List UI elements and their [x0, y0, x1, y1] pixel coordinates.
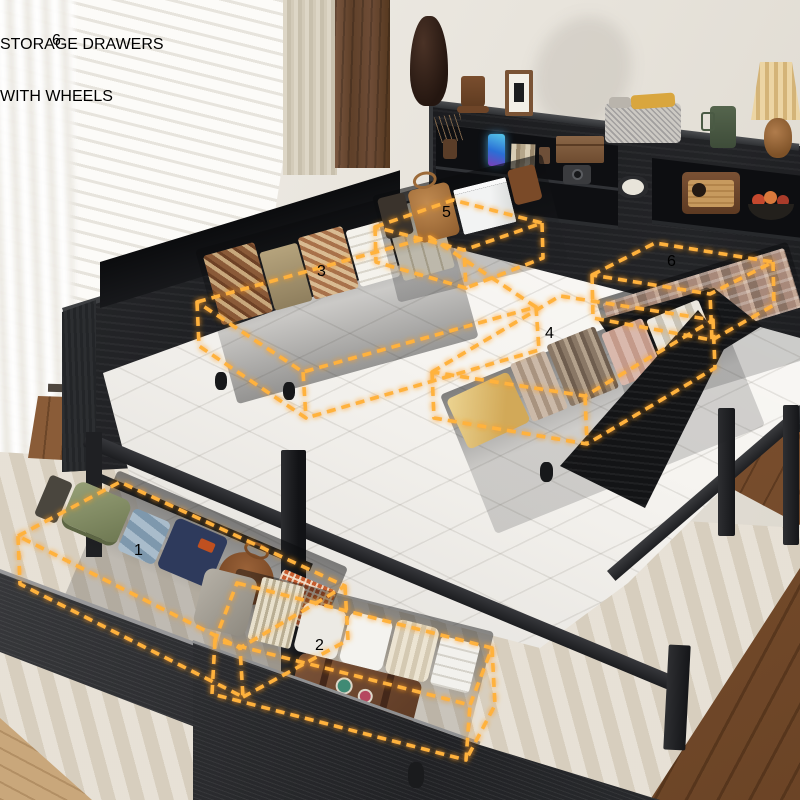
callout-badge-4: 4	[545, 325, 554, 343]
callout-badge-1: 1	[134, 542, 143, 560]
drawer-1-outline	[18, 482, 348, 697]
drawer-6-outline	[592, 243, 774, 340]
callout-number: 2	[315, 637, 324, 654]
callout-badge-5: 5	[442, 204, 451, 222]
callout-number: 3	[317, 263, 326, 280]
headline-line-1: STORAGE DRAWERS	[0, 36, 164, 54]
callout-badge-3: 3	[317, 263, 326, 281]
callout-number: 4	[545, 325, 554, 342]
drawer-3-outline	[197, 237, 539, 418]
callout-badge-2: 2	[315, 637, 324, 655]
drawer-highlight-outlines	[0, 0, 800, 800]
callout-number: 5	[442, 204, 451, 221]
callout-number: 6	[667, 253, 676, 270]
drawer-2-outline	[212, 583, 495, 760]
headline-line-2: WITH WHEELS	[0, 88, 113, 106]
callout-badge-6: 6	[667, 253, 676, 271]
product-image-bed-storage: 1 2 3 4 5 6 6 STORAGE DRAWERS WITH WHEEL…	[0, 0, 800, 800]
callout-number: 1	[134, 542, 143, 559]
